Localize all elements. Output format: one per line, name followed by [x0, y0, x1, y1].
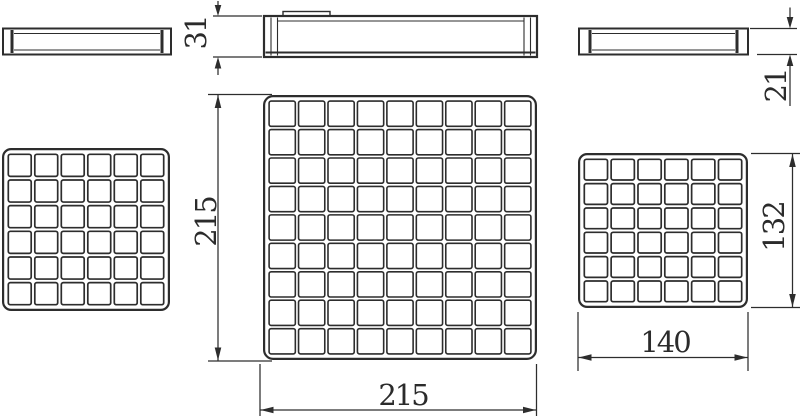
- grid-cell: [328, 101, 354, 126]
- grid-cell: [299, 243, 325, 268]
- dim-label-31: 31: [179, 17, 213, 50]
- grid-cell: [387, 300, 413, 325]
- grid-cell: [61, 206, 84, 228]
- grid-cell: [718, 208, 741, 229]
- grid-cell: [328, 300, 354, 325]
- grid-cell: [416, 243, 442, 268]
- grid-cell: [88, 231, 111, 253]
- grid-cell: [269, 101, 295, 126]
- left-grate-top-view: [3, 149, 169, 310]
- grid-cell: [446, 243, 472, 268]
- technical-drawing-canvas: 31 21 215 215 132 140: [0, 0, 800, 417]
- grid-cell: [61, 231, 84, 253]
- side-view-outline: [264, 16, 537, 57]
- grid-cell: [692, 257, 715, 278]
- grid-cell: [269, 329, 295, 354]
- grid-cell: [357, 158, 383, 183]
- arrowhead: [215, 95, 222, 108]
- arrowhead: [261, 407, 274, 414]
- grid-cell: [141, 154, 164, 176]
- grid-cell: [611, 208, 634, 229]
- grid-cell: [88, 283, 111, 305]
- grid-cell: [387, 130, 413, 155]
- grid-cell: [328, 272, 354, 297]
- grid-cell: [357, 300, 383, 325]
- extension-line: [750, 29, 797, 55]
- grid-cell: [328, 158, 354, 183]
- grid-cell: [446, 158, 472, 183]
- arrowhead: [787, 17, 794, 29]
- grid-cell: [584, 184, 607, 205]
- grid-cell: [387, 215, 413, 240]
- grid-cell: [387, 101, 413, 126]
- grid-cell: [88, 180, 111, 202]
- dimension-right-grid-height: 132: [751, 154, 800, 308]
- grid-cell: [35, 206, 58, 228]
- grid-cell: [416, 272, 442, 297]
- grid-cell: [692, 184, 715, 205]
- arrowhead: [789, 294, 796, 307]
- grid-cell: [357, 215, 383, 240]
- grid-cell: [692, 208, 715, 229]
- grid-cell: [584, 159, 607, 180]
- grid-cell: [61, 257, 84, 279]
- grid-outline: [264, 96, 536, 359]
- grid-cell: [475, 215, 501, 240]
- grid-cell: [114, 180, 137, 202]
- arrowhead: [787, 55, 794, 67]
- grid-cell: [141, 257, 164, 279]
- grid-cell: [357, 101, 383, 126]
- grid-cell: [299, 300, 325, 325]
- grid-cell: [475, 329, 501, 354]
- grid-cell: [638, 232, 661, 253]
- grid-cell: [475, 243, 501, 268]
- grid-cell: [665, 208, 688, 229]
- arrowhead: [579, 354, 592, 361]
- grid-cell: [446, 186, 472, 211]
- grid-cell: [88, 257, 111, 279]
- grid-cell: [718, 232, 741, 253]
- grid-cell: [141, 206, 164, 228]
- grid-cell: [505, 243, 531, 268]
- grid-cell: [446, 130, 472, 155]
- grid-cell: [328, 186, 354, 211]
- grid-cell: [505, 101, 531, 126]
- grid-cell: [328, 329, 354, 354]
- grid-cell: [416, 101, 442, 126]
- grid-cell: [505, 272, 531, 297]
- grid-cell: [61, 283, 84, 305]
- grid-cell: [269, 272, 295, 297]
- grid-cell: [8, 257, 31, 279]
- center-grate-top-view: [264, 96, 536, 359]
- grid-cell: [269, 215, 295, 240]
- grid-cell: [692, 232, 715, 253]
- grid-cell: [505, 158, 531, 183]
- grid-cell: [328, 130, 354, 155]
- grid-cell: [638, 281, 661, 302]
- arrowhead: [523, 407, 536, 414]
- dimension-right-grid-width: 140: [578, 312, 748, 371]
- grid-cell: [269, 130, 295, 155]
- grid-cell: [141, 231, 164, 253]
- grid-cell: [416, 186, 442, 211]
- grid-cell: [269, 158, 295, 183]
- arrowhead: [789, 154, 796, 167]
- grid-cell: [61, 154, 84, 176]
- grid-cell: [357, 186, 383, 211]
- grid-cell: [475, 101, 501, 126]
- grid-cell: [665, 159, 688, 180]
- grid-cell: [299, 186, 325, 211]
- grid-cell: [114, 257, 137, 279]
- grid-cell: [475, 130, 501, 155]
- grid-cell: [475, 158, 501, 183]
- dim-label-215-height: 215: [189, 197, 223, 247]
- grid-cell: [584, 208, 607, 229]
- left-grate-side-view: [3, 29, 171, 55]
- grid-cell: [141, 180, 164, 202]
- grid-cell: [505, 130, 531, 155]
- dim-label-215-width: 215: [378, 378, 428, 412]
- grid-cell: [718, 281, 741, 302]
- grid-cell: [299, 101, 325, 126]
- grid-cell: [611, 232, 634, 253]
- right-grate-side-view: [579, 29, 748, 55]
- grid-cell: [299, 158, 325, 183]
- grid-cell: [416, 215, 442, 240]
- dimension-center-side-height: 31: [179, 1, 262, 75]
- grid-cell: [718, 184, 741, 205]
- grid-cell: [446, 215, 472, 240]
- grid-cell: [387, 243, 413, 268]
- grid-cell: [357, 243, 383, 268]
- grid-cell: [692, 281, 715, 302]
- grid-cell: [611, 184, 634, 205]
- grid-cell: [446, 101, 472, 126]
- top-tab: [283, 12, 330, 17]
- grate-technical-drawing: 31 21 215 215 132 140: [0, 0, 800, 417]
- grid-cell: [114, 206, 137, 228]
- grid-cell: [505, 300, 531, 325]
- grid-cell: [638, 184, 661, 205]
- grid-cell: [475, 272, 501, 297]
- grid-cell: [665, 281, 688, 302]
- arrowhead: [215, 348, 222, 361]
- grid-cell: [8, 231, 31, 253]
- grid-cell: [505, 329, 531, 354]
- grid-cell: [114, 154, 137, 176]
- right-grate-top-view: [579, 154, 747, 307]
- grid-cell: [718, 257, 741, 278]
- grid-cell: [35, 283, 58, 305]
- grid-cell: [611, 281, 634, 302]
- grid-cell: [638, 208, 661, 229]
- grid-cell: [328, 243, 354, 268]
- side-view-outline: [3, 29, 171, 55]
- grid-cell: [269, 243, 295, 268]
- grid-cell: [35, 154, 58, 176]
- grid-cell: [35, 231, 58, 253]
- grid-cell: [8, 154, 31, 176]
- grid-cell: [505, 215, 531, 240]
- grid-cell: [141, 283, 164, 305]
- grid-cell: [665, 232, 688, 253]
- center-grate-side-view: [264, 12, 537, 58]
- grid-cell: [416, 158, 442, 183]
- dimension-right-side-height: 21: [750, 8, 797, 107]
- grid-cell: [387, 186, 413, 211]
- grid-outline: [579, 154, 747, 307]
- grid-cell: [299, 272, 325, 297]
- grid-cell: [88, 206, 111, 228]
- grid-cell: [416, 130, 442, 155]
- grid-cell: [8, 180, 31, 202]
- arrowhead: [215, 5, 222, 16]
- grid-cell: [638, 159, 661, 180]
- grid-cell: [114, 231, 137, 253]
- grid-cell: [446, 300, 472, 325]
- grid-cell: [357, 130, 383, 155]
- grid-cell: [35, 257, 58, 279]
- grid-cell: [299, 329, 325, 354]
- grid-cell: [114, 283, 137, 305]
- grid-cell: [584, 232, 607, 253]
- grid-cell: [416, 329, 442, 354]
- grid-cell: [8, 206, 31, 228]
- grid-cell: [88, 154, 111, 176]
- arrowhead: [735, 354, 748, 361]
- arrowhead: [215, 57, 222, 69]
- grid-cell: [446, 329, 472, 354]
- grid-cell: [505, 186, 531, 211]
- grid-cell: [387, 329, 413, 354]
- dim-label-132: 132: [757, 202, 791, 251]
- grid-cell: [299, 130, 325, 155]
- grid-cell: [692, 159, 715, 180]
- grid-cell: [387, 158, 413, 183]
- grid-cell: [416, 300, 442, 325]
- grid-outline: [3, 149, 169, 310]
- grid-cell: [387, 272, 413, 297]
- grid-cell: [475, 300, 501, 325]
- dimension-center-grid-height: 215: [189, 95, 272, 362]
- grid-cell: [35, 180, 58, 202]
- grid-cell: [269, 186, 295, 211]
- grid-cell: [611, 159, 634, 180]
- grid-cell: [357, 329, 383, 354]
- grid-cell: [328, 215, 354, 240]
- grid-cell: [269, 300, 295, 325]
- grid-cell: [611, 257, 634, 278]
- grid-cell: [718, 159, 741, 180]
- dimension-center-grid-width: 215: [260, 364, 537, 416]
- grid-cell: [584, 281, 607, 302]
- side-view-outline: [579, 29, 748, 55]
- grid-cell: [584, 257, 607, 278]
- grid-cell: [665, 257, 688, 278]
- grid-cell: [475, 186, 501, 211]
- grid-cell: [665, 184, 688, 205]
- extension-line: [213, 16, 262, 57]
- grid-cell: [299, 215, 325, 240]
- grid-cell: [8, 283, 31, 305]
- grid-cell: [357, 272, 383, 297]
- grid-cell: [61, 180, 84, 202]
- grid-cell: [446, 272, 472, 297]
- dim-label-21: 21: [759, 70, 793, 103]
- dim-label-140: 140: [640, 325, 690, 359]
- grid-cell: [638, 257, 661, 278]
